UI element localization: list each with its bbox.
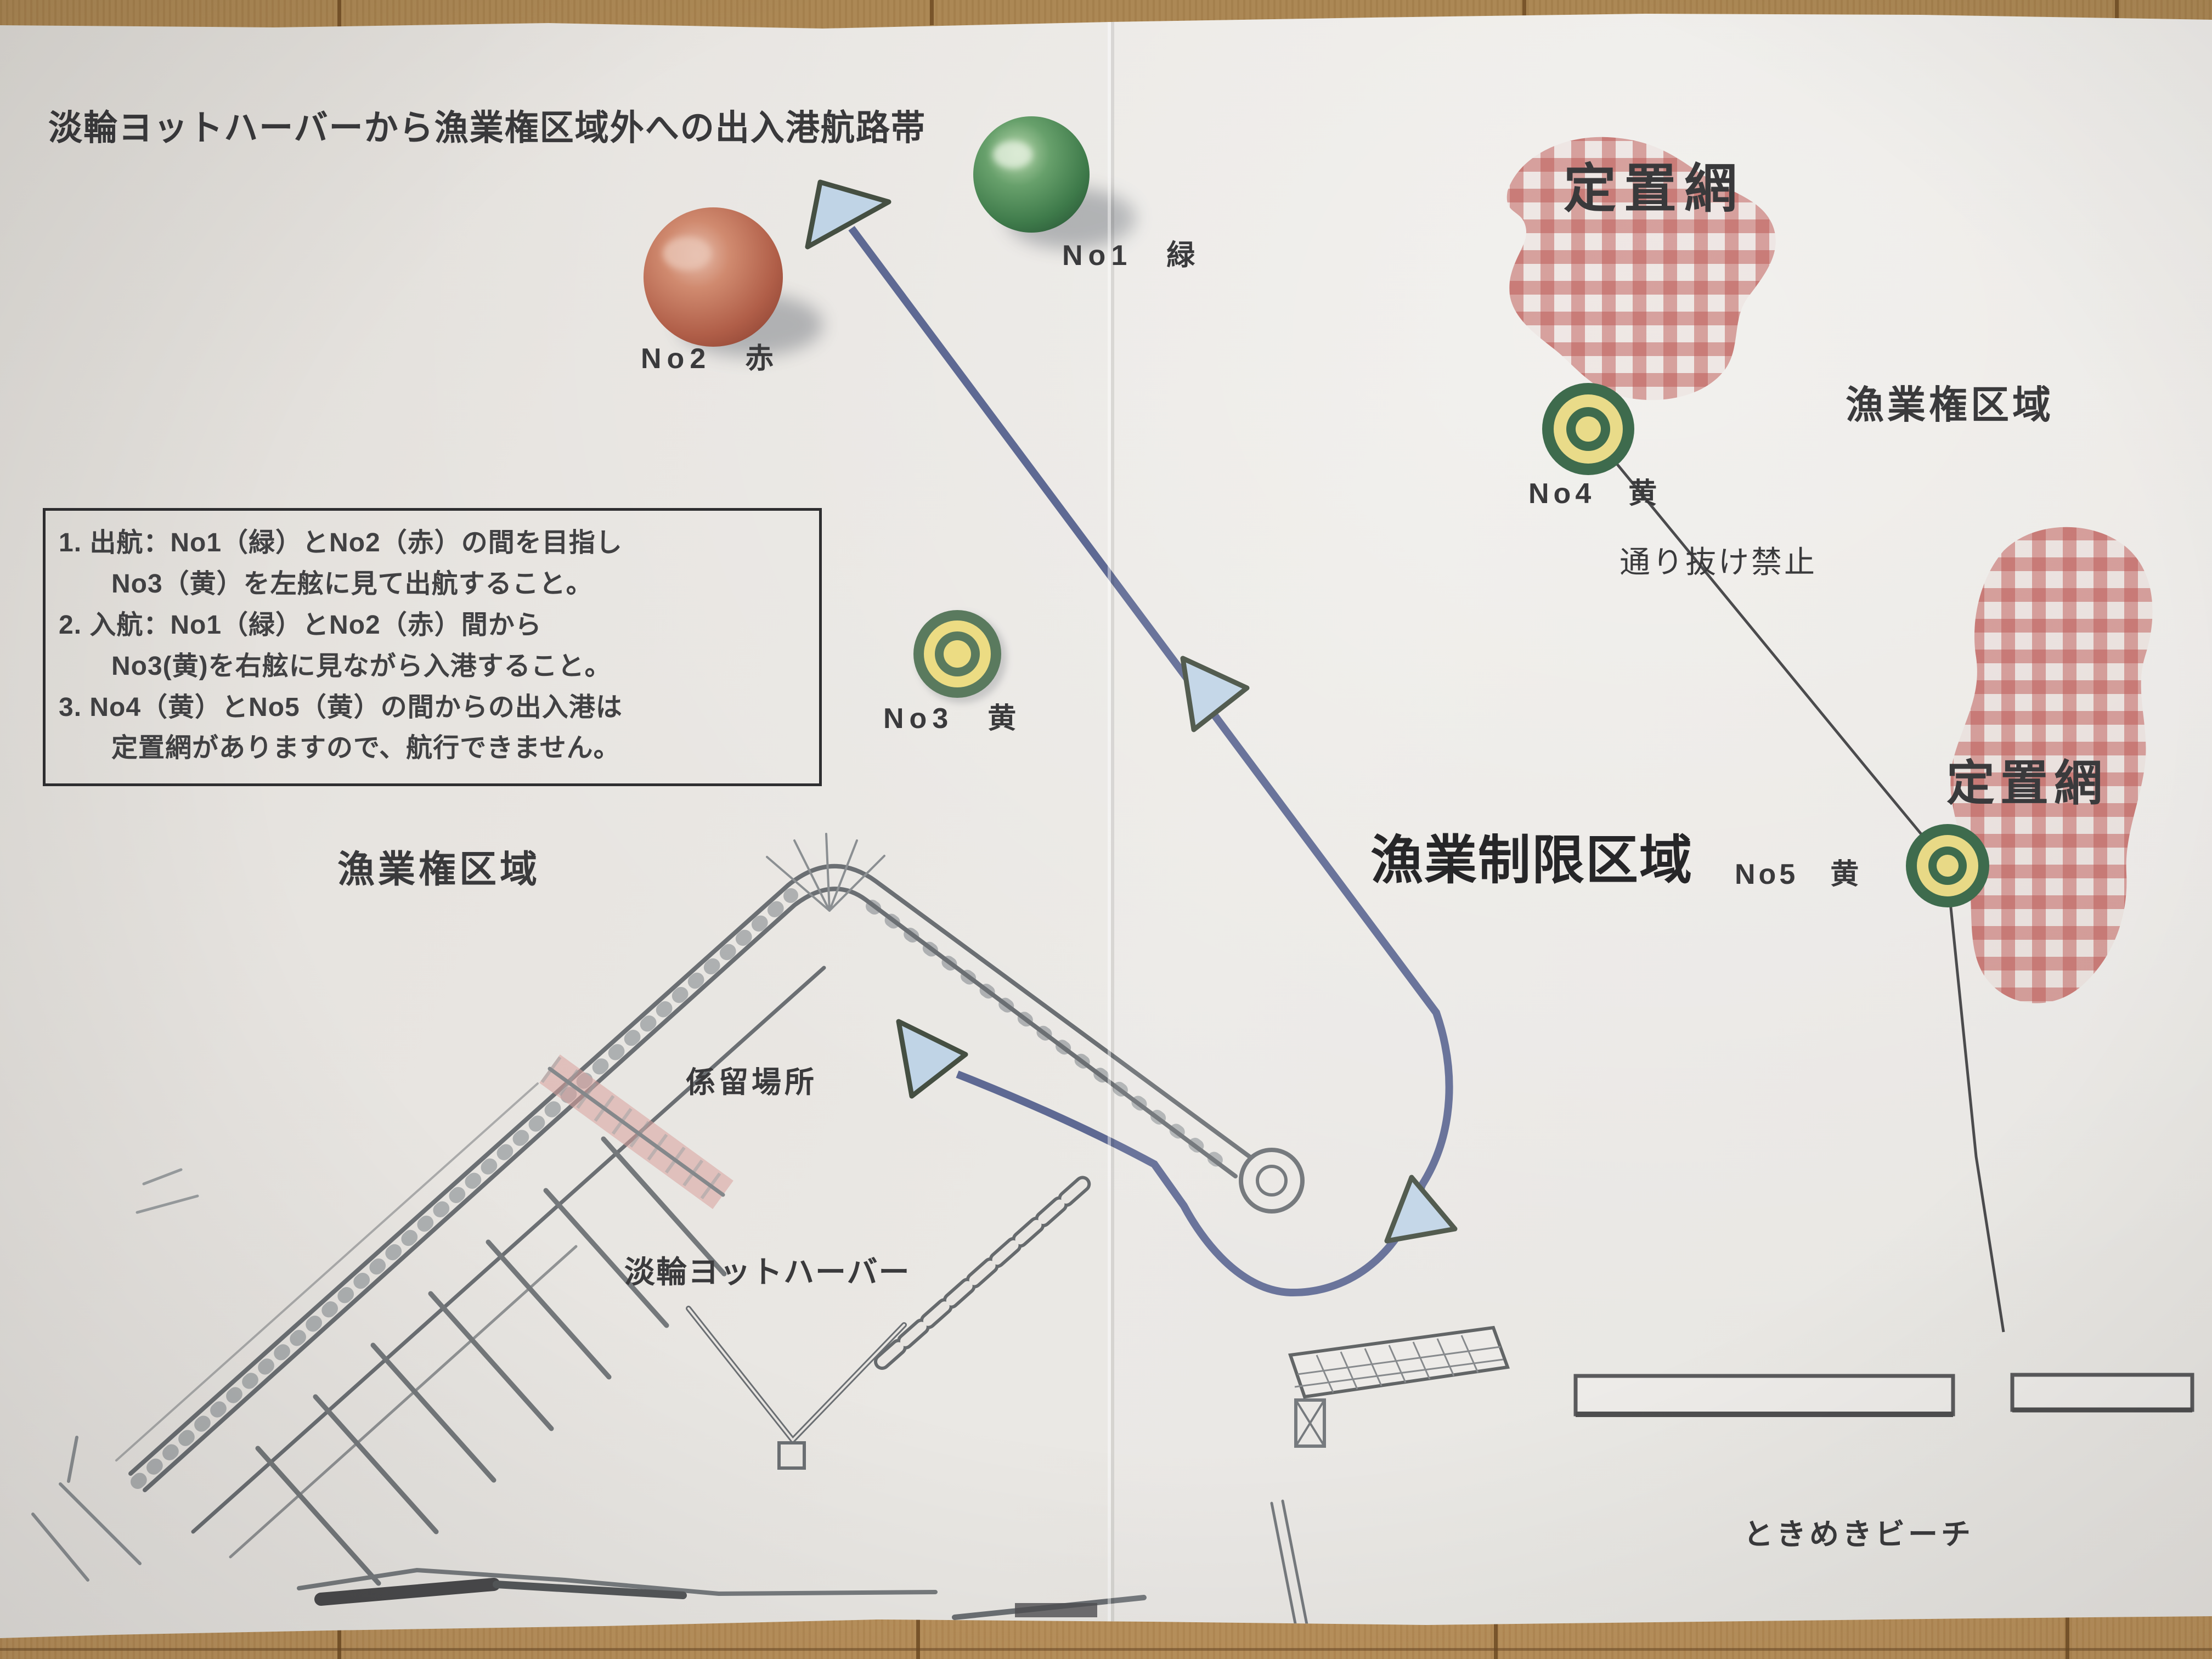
instruction-line-6: 定置網がありますので、航行できません。 <box>59 728 809 769</box>
mooring-area-label: 係留場所 <box>686 1066 817 1099</box>
instruction-line-1: 1. 出航：No1（緑）とNo2（赤）の間を目指し <box>59 523 809 564</box>
buoy-no2-label: No2 赤 <box>641 343 779 375</box>
buoy-no2-red <box>644 207 823 357</box>
fishing-rights-label-left: 漁業権区域 <box>337 849 540 890</box>
wooden-wall: 淡輪ヨットハーバーから漁業権区域外への出入港航路帯 1. 出航：No1（緑）とN… <box>0 0 2212 1659</box>
notice-paper: 淡輪ヨットハーバーから漁業権区域外への出入港航路帯 1. 出航：No1（緑）とN… <box>0 0 2212 1659</box>
buoy-no5-label: No5 黄 <box>1735 859 1862 890</box>
fixed-net-label-top: 定置網 <box>1564 160 1745 218</box>
instruction-line-4: No3(黄)を右舷に見ながら入港すること。 <box>59 646 809 687</box>
buoy-no3-yellow <box>913 610 1007 703</box>
instruction-box: 1. 出航：No1（緑）とNo2（赤）の間を目指し No3（黄）を左舷に見て出航… <box>43 508 822 786</box>
page-title: 淡輪ヨットハーバーから漁業権区域外への出入港航路帯 <box>48 109 926 147</box>
fishing-restricted-label: 漁業制限区域 <box>1370 832 1693 890</box>
instruction-line-3: 2. 入航：No1（緑）とNo2（赤）間から <box>59 605 809 646</box>
fixed-net-label-right: 定置網 <box>1946 757 2108 810</box>
route-arrow-gate <box>808 182 889 247</box>
instruction-line-2: No3（黄）を左舷に見て出航すること。 <box>59 564 809 605</box>
instruction-line-5: 3. No4（黄）とNo5（黄）の間からの出入港は <box>59 687 809 729</box>
buoy-no1-label: No1 緑 <box>1062 240 1200 272</box>
fishing-rights-label-right: 漁業権区域 <box>1846 384 2054 426</box>
plank-groove <box>0 1648 2212 1651</box>
paper-fold-crease <box>1108 14 2212 1629</box>
plank-joint <box>2066 1612 2069 1659</box>
buoy-no4-label: No4 黄 <box>1528 478 1661 510</box>
no-passage-label: 通り抜け禁止 <box>1620 545 1817 579</box>
plank-joint <box>916 1616 920 1659</box>
yacht-harbor-label: 淡輪ヨットハーバー <box>624 1255 910 1289</box>
plank-joint <box>930 0 934 25</box>
route-arrow-harbor <box>899 1022 966 1096</box>
beach-label: ときめきビーチ <box>1743 1519 1974 1551</box>
buoy-no3-label: No3 黄 <box>883 703 1022 735</box>
plank-joint <box>337 0 341 27</box>
